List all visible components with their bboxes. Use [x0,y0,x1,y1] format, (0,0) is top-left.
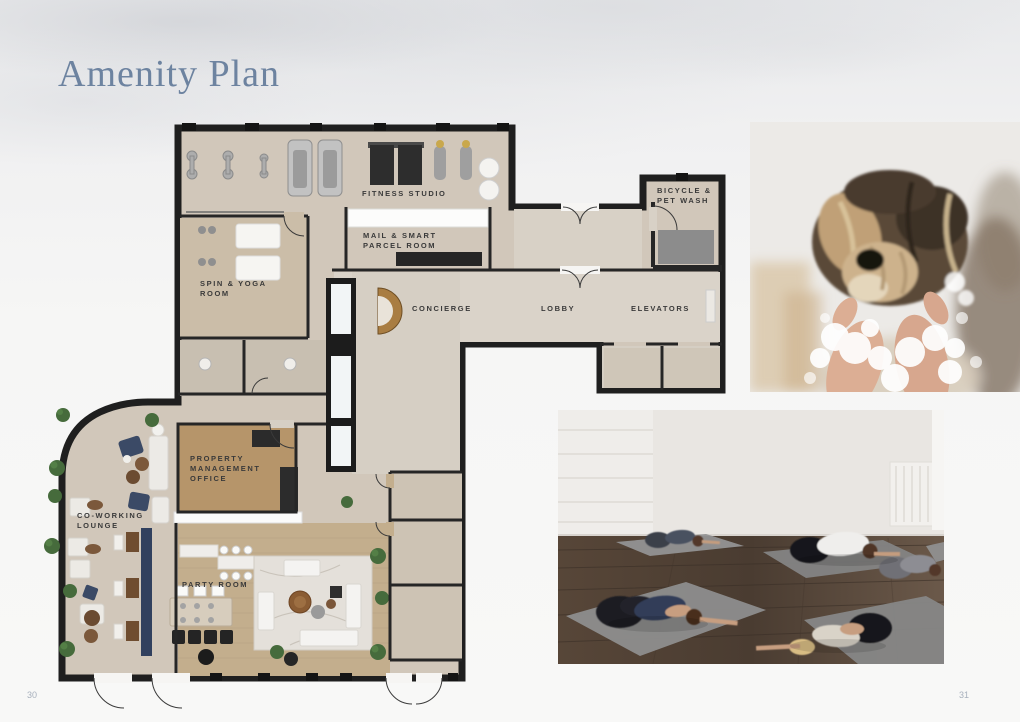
yoga-class-photo [558,410,944,664]
dog-nose [856,249,884,271]
pet-wash-dog-photo [750,122,1020,392]
navy-banquette [141,528,152,656]
room-label-property-management: PROPERTY MANAGEMENT OFFICE [190,454,261,484]
room-label-concierge: CONCIERGE [412,304,472,314]
brochure-page: Amenity Plan [0,0,1020,722]
dining-table [170,598,232,626]
lobby-bench [706,290,715,322]
room-label-mail-parcel: MAIL & SMART PARCEL ROOM [363,231,437,251]
room-label-party-room: PARTY ROOM [182,580,248,590]
room-label-bicycle-pet-wash: BICYCLE & PET WASH [657,186,712,206]
room-label-fitness-studio: FITNESS STUDIO [362,189,447,199]
page-number-right: 31 [959,690,969,700]
room-label-lobby: LOBBY [541,304,575,314]
room-label-elevators: ELEVATORS [631,304,690,314]
pet-wash-mat [658,230,714,264]
room-label-coworking: CO-WORKING LOUNGE [77,511,144,531]
stair-shaft-stack [326,278,356,472]
room-label-spin-yoga: SPIN & YOGA ROOM [200,279,267,299]
page-number-left: 30 [27,690,37,700]
